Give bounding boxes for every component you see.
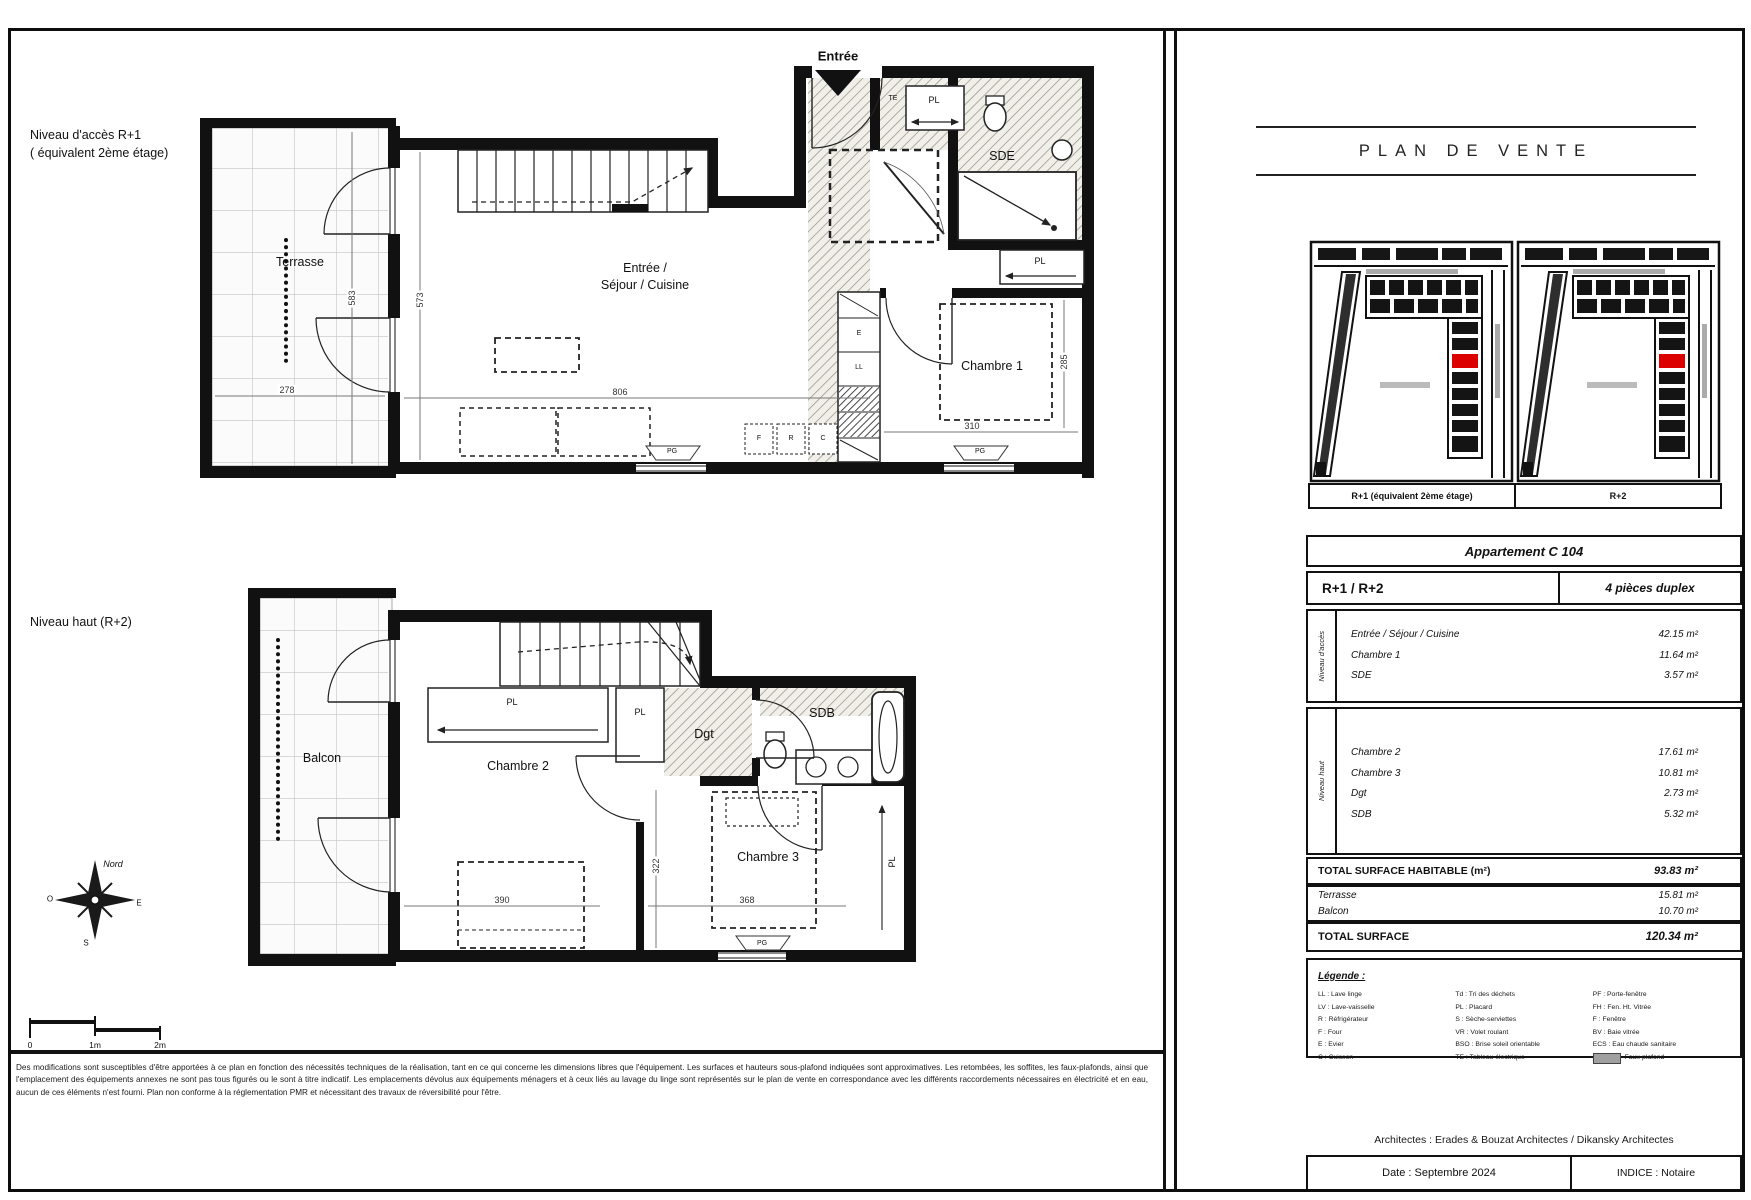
plan-de-vente-sheet: Niveau d'accès R+1 ( équivalent 2ème éta… xyxy=(0,0,1751,1200)
panel-divider-1 xyxy=(1163,28,1166,1192)
panel-divider-2 xyxy=(1174,28,1177,1192)
sheet-frame xyxy=(8,28,1745,1192)
